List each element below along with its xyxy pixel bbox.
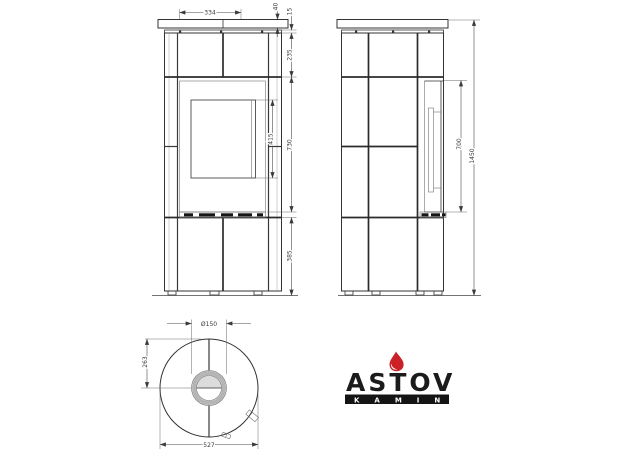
front-door (180, 81, 266, 212)
dim-label-334: 334 (204, 10, 216, 17)
dim-label-40: 40 (273, 3, 280, 11)
drawing-canvas: 334 40 15 235 730 (0, 0, 624, 460)
top-view: Ø150 263 527 (141, 320, 259, 450)
front-view: 334 40 15 235 730 (152, 3, 298, 296)
dim-front-top-width: 334 (180, 9, 242, 19)
front-foot (168, 291, 176, 295)
side-door-profile (425, 81, 444, 212)
dim-front-glass-height: 415 (256, 100, 278, 178)
brand-logo: ASTOV KAMIN (345, 352, 455, 405)
brand-name: ASTOV (346, 368, 455, 397)
dim-label-1450: 1450 (469, 148, 476, 163)
side-door-handle (429, 108, 434, 192)
front-foot (254, 291, 262, 295)
side-view: 700 1450 (337, 20, 481, 296)
dim-label-730: 730 (287, 139, 294, 151)
side-foot (434, 291, 442, 295)
dim-label-527: 527 (203, 442, 215, 449)
dim-front-top-band: 235 (282, 33, 297, 77)
dim-label-700: 700 (456, 138, 463, 150)
dim-label-flue: Ø150 (201, 321, 217, 328)
dim-side-total-height: 1450 (449, 20, 480, 296)
dim-label-235: 235 (287, 49, 294, 61)
brand-subname: KAMIN (354, 396, 455, 404)
front-foot (210, 291, 219, 295)
dim-label-15: 15 (287, 8, 294, 16)
dim-front-rim-height: 15 (282, 8, 297, 33)
dim-front-base-height: 385 (282, 218, 297, 296)
side-top-plate (337, 20, 448, 29)
side-body (342, 33, 444, 291)
top-flue (192, 371, 227, 406)
dim-label-415: 415 (268, 133, 275, 145)
side-foot (372, 291, 380, 295)
side-foot (345, 291, 353, 295)
front-glass-window (191, 100, 256, 178)
side-foot (416, 291, 424, 295)
technical-drawing-sheet: 334 40 15 235 730 (0, 0, 624, 460)
dim-label-263: 263 (142, 356, 149, 368)
dim-top-center-offset: 263 (141, 339, 201, 388)
dim-side-door-height: 700 (444, 81, 467, 213)
dim-label-385: 385 (287, 250, 294, 262)
